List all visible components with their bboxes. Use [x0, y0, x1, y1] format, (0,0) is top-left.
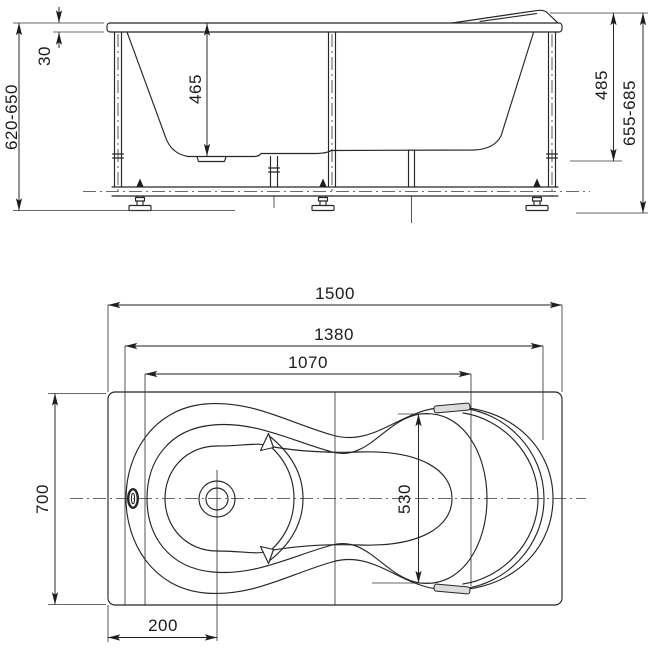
dim-overall-length: 1500: [108, 284, 562, 305]
headrest-profile: [452, 10, 558, 23]
dim-overall-height-headrest: 655-685: [550, 13, 648, 213]
dim-overall-width: 700: [33, 394, 106, 605]
plan-view: 1500 1380 1070 700 530 200: [33, 284, 586, 642]
dim-basin-length: 1070: [145, 353, 471, 374]
dim-label-inner-depth-back: 485: [592, 70, 611, 100]
dim-rim-inner-length: 1380: [125, 325, 543, 346]
dim-label-rim-thickness: 30: [35, 46, 54, 66]
drain-recess: [197, 157, 226, 162]
dim-rim-thickness: 30: [35, 7, 104, 66]
technical-drawing: 620-650 30 465 485 655-685: [0, 0, 650, 650]
dim-drain-offset: 200: [108, 616, 217, 638]
dim-label-drain-offset: 200: [148, 616, 178, 635]
dim-label-overall-width: 700: [33, 484, 52, 514]
dim-label-basin-width: 530: [395, 484, 414, 514]
dim-label-overall-height-headrest: 655-685: [620, 80, 639, 146]
foot-left: [129, 179, 151, 211]
foot-middle: [312, 179, 334, 211]
support-posts: [271, 150, 415, 187]
dim-label-inner-depth-front: 465: [186, 74, 205, 104]
support-post-centerlines: [274, 196, 412, 223]
reference-lines: [108, 305, 562, 642]
dim-label-overall-length: 1500: [315, 284, 355, 303]
dim-inner-depth-front: 465: [186, 24, 207, 157]
foot-right: [526, 179, 548, 211]
dim-label-overall-height: 620-650: [2, 84, 21, 150]
dim-inner-depth-back: 485: [570, 13, 622, 161]
dim-label-basin-length: 1070: [288, 353, 328, 372]
dim-label-rim-inner-length: 1380: [314, 325, 354, 344]
drawing-canvas: 620-650 30 465 485 655-685: [0, 0, 650, 650]
tub-rim: [107, 23, 562, 32]
frame-posts: [115, 32, 556, 187]
side-view: 620-650 30 465 485 655-685: [2, 7, 648, 223]
